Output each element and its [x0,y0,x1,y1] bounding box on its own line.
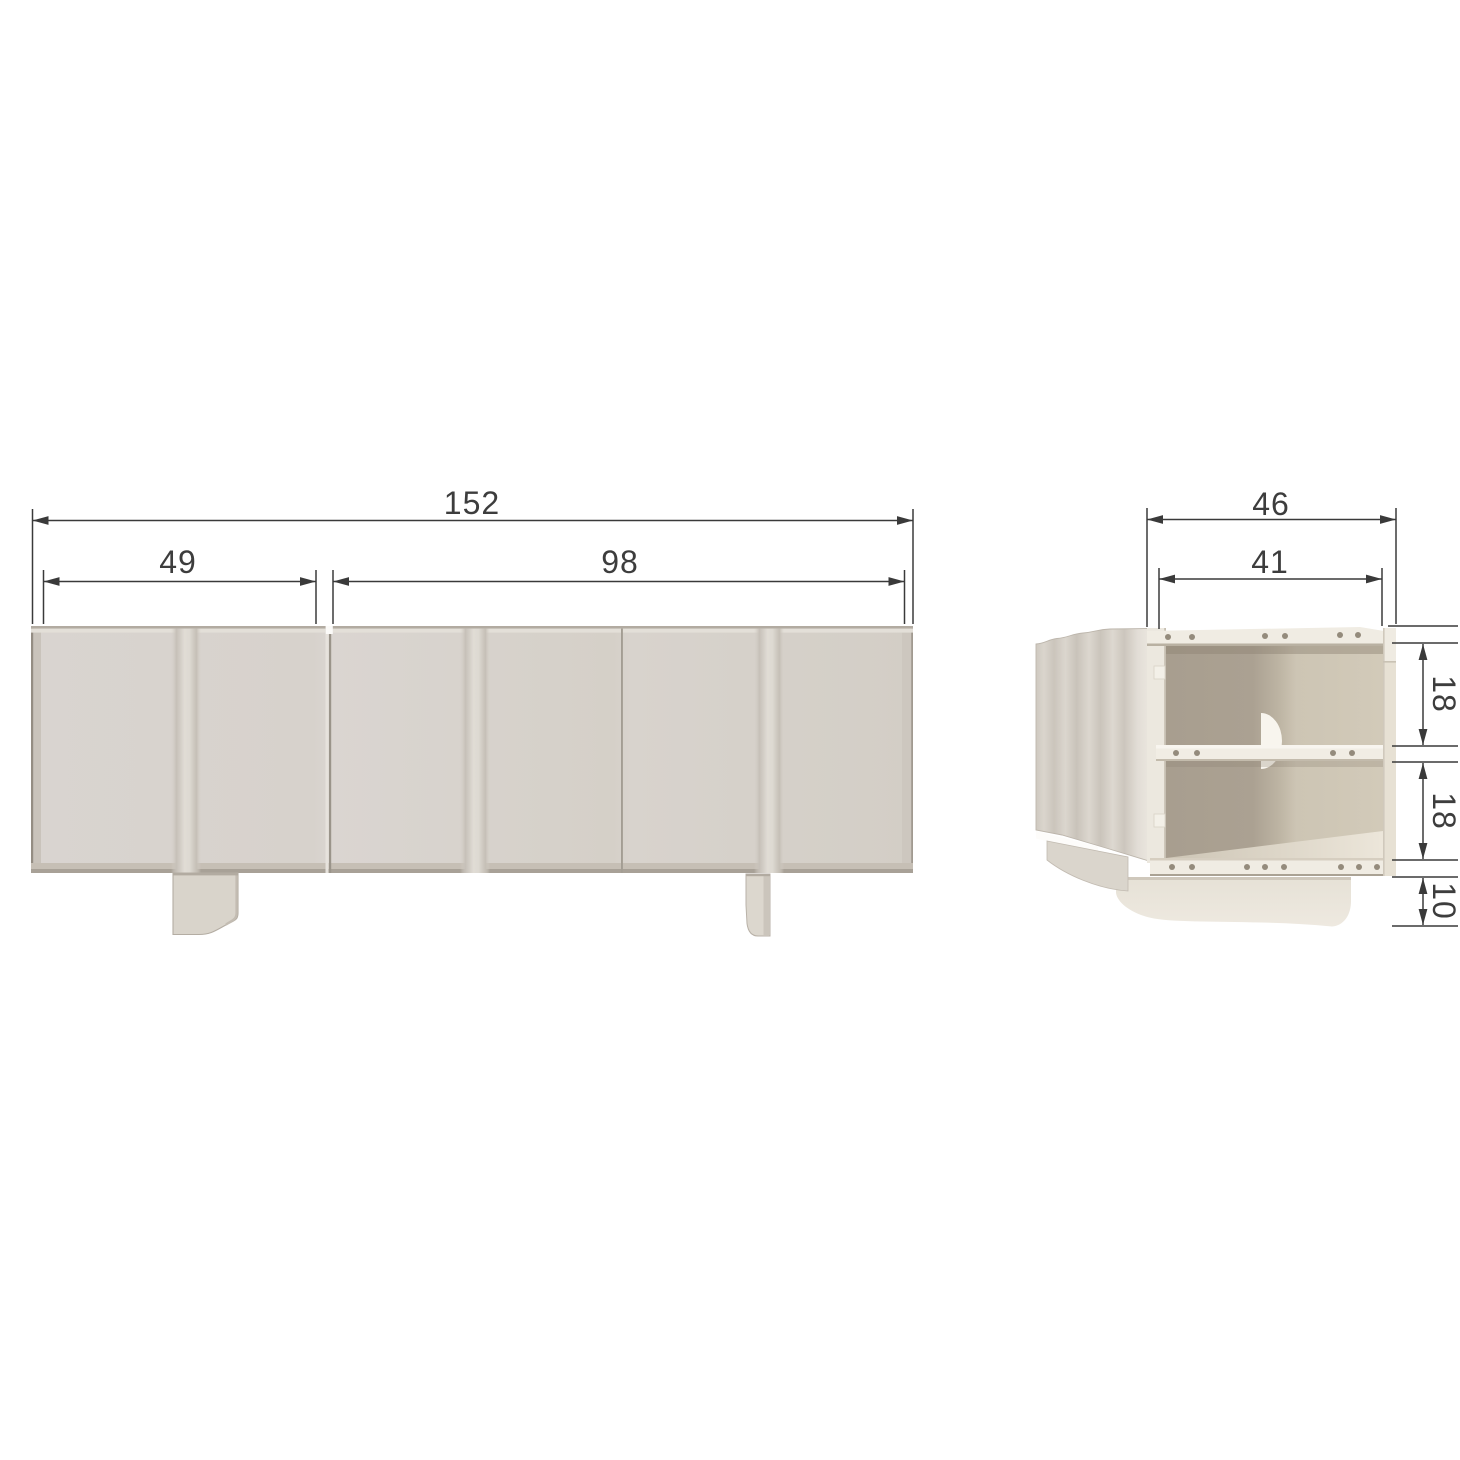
dim-label-inner-depth: 41 [1251,546,1289,578]
dim-label-upper-compartment-height: 18 [1428,675,1460,713]
side-right-stile-lower [1383,662,1396,876]
front-view-cabinet [31,626,913,936]
door-ridge-left [171,629,201,873]
under-shelf-shadow [1166,761,1383,767]
dim-label-left-door-width: 49 [159,546,197,578]
interior-ceiling-shadow [1166,646,1383,654]
dim-label-leg-height: 10 [1428,882,1460,920]
side-shelf-bottom-edge [1156,759,1394,761]
shelf-pin-upper [1154,666,1165,679]
front-top-edge [31,626,913,629]
side-right-stile-edge [1383,628,1385,876]
module-seam-notch [326,626,333,634]
shelf-pin-lower [1154,814,1165,827]
dim-label-double-door-width: 98 [601,546,639,578]
side-top-panel-edge [1147,644,1396,647]
side-shelf-top-face [1156,745,1394,749]
door-seam [621,629,623,873]
dim-label-lower-compartment-height: 18 [1428,792,1460,830]
front-left-leg-top-shadow [173,873,238,875]
front-right-leg-top-shadow [746,874,770,876]
side-right-stile-seam [1383,661,1396,663]
dim-label-total-width: 152 [444,487,500,519]
side-fluted-front [1036,629,1149,862]
side-base-plinth [1116,877,1351,927]
front-left-outline [31,626,33,873]
module-seam-light [326,626,329,873]
front-right-leg-shade [764,874,770,935]
dimension-drawing-canvas: 152 49 98 46 41 18 18 10 [0,0,1460,1460]
front-right-outline [911,626,913,873]
door-ridge-right [754,629,784,873]
side-view-cabinet [1036,627,1396,927]
front-left-leg [173,873,238,935]
door-ridge-middle [460,629,490,873]
technical-drawing [0,0,1460,1460]
side-base-top-shadow [1116,877,1351,880]
dim-label-total-depth: 46 [1252,488,1290,520]
side-bottom-panel-top [1150,858,1396,861]
side-bottom-panel-edge [1150,874,1396,876]
module-seam [329,626,331,873]
